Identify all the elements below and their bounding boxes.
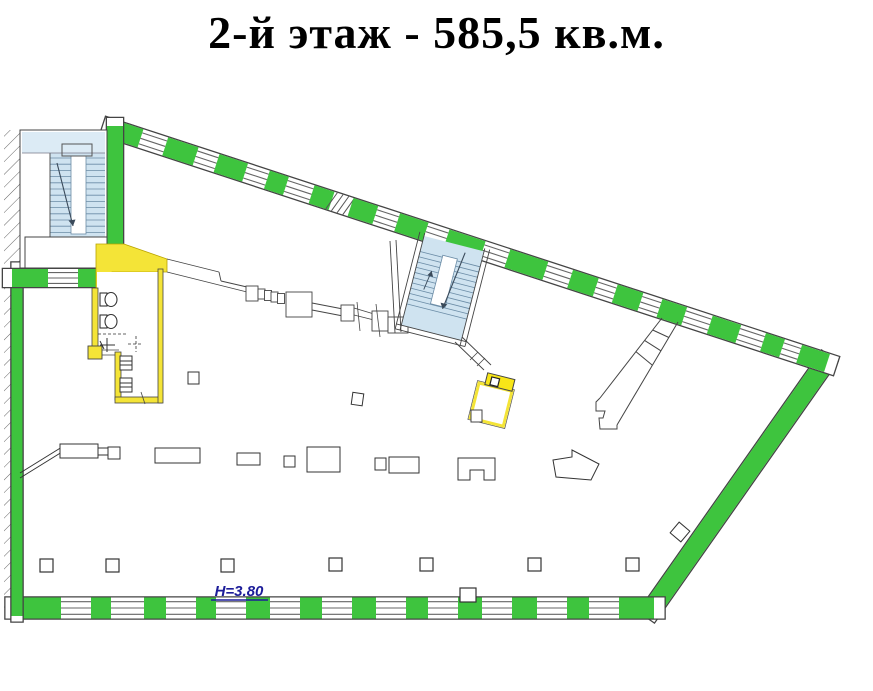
floor-plan-canvas: H=3.80 (0, 0, 873, 691)
toilet-fixture (100, 293, 117, 307)
height-label-text: H=3.80 (215, 583, 264, 600)
notched-table (458, 458, 495, 480)
wall-segment (115, 397, 162, 403)
staircase-top-left (20, 130, 107, 268)
partition-wall-right (596, 318, 678, 429)
radiator-fixture (120, 356, 132, 370)
radiator-fixture (120, 378, 132, 392)
columns-row (40, 558, 639, 602)
bathroom-area (88, 269, 163, 404)
wall-segment (92, 288, 98, 348)
floor-plan-page: 2-й этаж - 585,5 кв.м. (0, 0, 873, 691)
wall-node (88, 346, 102, 359)
service-room-yellow (468, 371, 517, 429)
height-label: H=3.80 (211, 583, 268, 600)
stair-landing (25, 237, 107, 268)
wall-segment (158, 269, 163, 403)
corridor-wall (167, 259, 408, 337)
toilet-fixture (100, 315, 117, 329)
stair-stem-wall (455, 337, 491, 370)
arrow-shape (553, 450, 599, 480)
